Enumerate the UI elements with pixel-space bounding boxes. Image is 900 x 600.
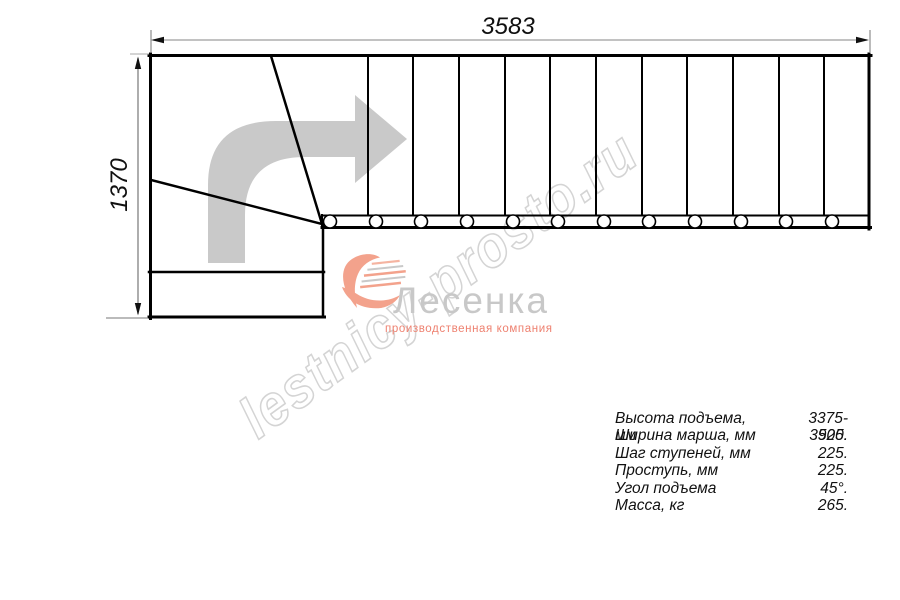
tread-lines	[368, 56, 824, 215]
spec-value: 45°.	[820, 480, 848, 497]
logo-tagline: производственная компания	[385, 323, 553, 335]
staircase-drawing-page: { "dimensions": { "top_width_mm": "3583"…	[0, 0, 900, 600]
spec-row-tread: Проступь, мм 225.	[615, 462, 848, 479]
dim-arrow-right-icon	[856, 37, 869, 43]
spec-row-step: Шаг ступеней, мм 225.	[615, 445, 848, 462]
top-dimension: 3583	[130, 13, 870, 54]
spec-label: Угол подъема	[615, 480, 716, 497]
top-dimension-value: 3583	[481, 13, 535, 40]
spec-value: 225.	[818, 462, 848, 479]
left-dimension-value: 1370	[106, 158, 133, 212]
spec-value: 3375-3525.	[770, 410, 848, 427]
spec-value: 265.	[818, 497, 848, 514]
spec-row-mass: Масса, кг 265.	[615, 497, 848, 514]
spec-value: 225.	[818, 445, 848, 462]
spec-label: Высота подъема, мм	[615, 410, 770, 427]
left-dimension: 1370	[106, 57, 148, 319]
spec-row-angle: Угол подъема 45°.	[615, 480, 848, 497]
spec-label: Масса, кг	[615, 497, 684, 514]
dim-arrow-down-icon	[135, 303, 141, 316]
stair-outline	[149, 54, 871, 319]
logo-name: Лесенка	[393, 280, 549, 322]
specs-table: Высота подъема, мм 3375-3525. Ширина мар…	[615, 410, 848, 514]
dim-arrow-up-icon	[135, 57, 141, 70]
spec-label: Ширина марша, мм	[615, 427, 756, 444]
spec-row-height: Высота подъема, мм 3375-3525.	[615, 410, 848, 427]
dim-arrow-left-icon	[151, 37, 164, 43]
spec-label: Шаг ступеней, мм	[615, 445, 751, 462]
spec-value: 900.	[818, 427, 848, 444]
spec-label: Проступь, мм	[615, 462, 718, 479]
